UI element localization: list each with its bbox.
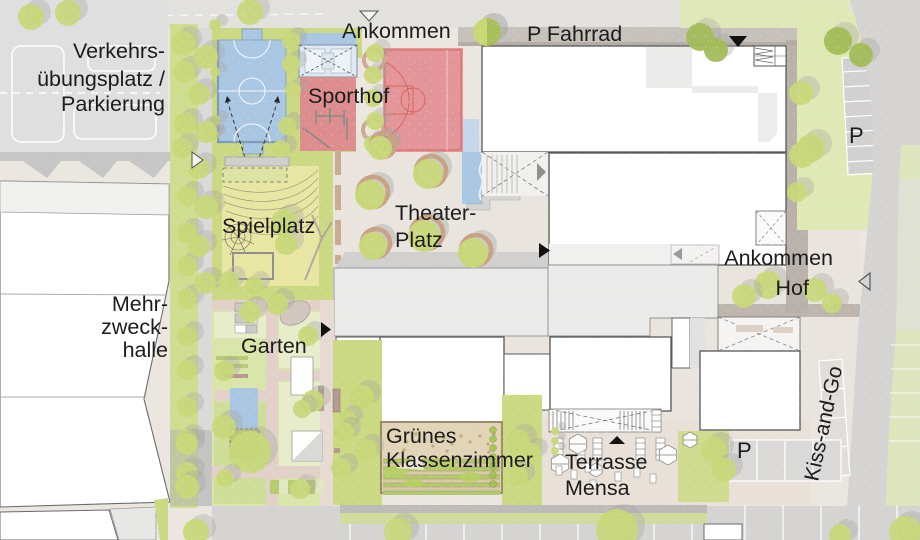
svg-text:Platz: Platz <box>395 228 443 252</box>
svg-text:Parkierung: Parkierung <box>61 92 165 116</box>
svg-text:Terrasse: Terrasse <box>565 450 647 474</box>
svg-text:Garten: Garten <box>241 334 307 358</box>
svg-text:zweck-: zweck- <box>101 315 168 339</box>
svg-text:Theater-: Theater- <box>395 201 476 225</box>
svg-text:Ankommen: Ankommen <box>724 246 833 270</box>
svg-text:P Fahrrad: P Fahrrad <box>527 22 622 46</box>
svg-text:P: P <box>737 438 752 463</box>
svg-text:Sporthof: Sporthof <box>308 84 389 108</box>
svg-text:Verkehrs-: Verkehrs- <box>73 39 165 63</box>
svg-text:Ankommen: Ankommen <box>342 19 451 43</box>
svg-text:Spielplatz: Spielplatz <box>222 214 315 238</box>
svg-text:P: P <box>849 123 864 148</box>
svg-text:Mensa: Mensa <box>565 476 630 500</box>
svg-text:Hof: Hof <box>776 276 809 300</box>
svg-text:Mehr-: Mehr- <box>112 292 168 316</box>
svg-text:Klassenzimmer: Klassenzimmer <box>386 448 533 472</box>
svg-text:übungsplatz /: übungsplatz / <box>37 67 165 91</box>
svg-text:halle: halle <box>123 338 168 362</box>
svg-text:Grünes: Grünes <box>386 424 457 448</box>
